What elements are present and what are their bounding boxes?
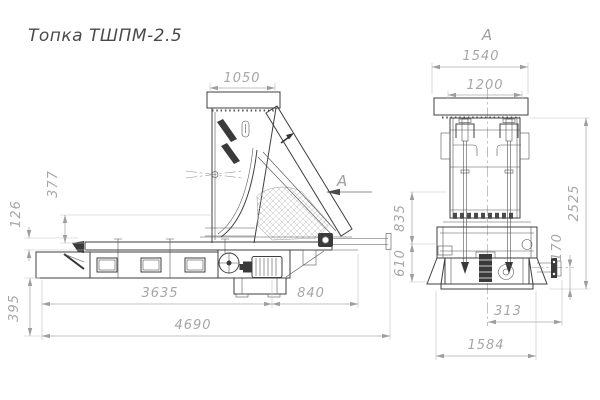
dim-shaft-offset: 313	[494, 304, 522, 319]
dim-overall-height: 2525	[567, 184, 582, 221]
dim-base-width: 1584	[467, 338, 504, 353]
front-view: А	[393, 26, 590, 360]
dim-conveyor-length: 3635	[141, 286, 178, 301]
side-view-dimensions: 1050 377 126 395 3635	[7, 71, 390, 340]
hopper-brace	[221, 143, 240, 164]
hopper-brace	[217, 119, 237, 142]
dim-hopper-height: 377	[46, 170, 61, 198]
section-arrow: А	[326, 172, 372, 195]
front-hopper	[434, 98, 529, 218]
hopper	[186, 92, 330, 243]
dim-shaft-axis-height: 170	[550, 233, 565, 261]
dim-top-frame-width: 1540	[462, 49, 499, 64]
dim-base-depth: 395	[7, 294, 22, 322]
drawing-sheet: Топка ТШПМ-2.5	[0, 0, 600, 400]
dim-lower-height: 610	[393, 249, 408, 277]
front-view-dimensions: 1540 1200 835 610 2525 170	[393, 49, 590, 360]
material-pile	[257, 187, 330, 240]
side-view: А	[7, 71, 391, 340]
shaft-end	[386, 234, 391, 250]
dim-mid-height: 835	[393, 204, 408, 232]
coupling	[243, 262, 252, 273]
section-arrow-label: А	[336, 172, 347, 190]
grate-bars	[452, 212, 514, 219]
dim-overall-length: 4690	[174, 318, 211, 333]
technical-drawing: А	[0, 0, 600, 400]
electric-motor	[252, 257, 282, 278]
dim-drive-length: 840	[297, 286, 325, 301]
front-view-label: А	[481, 26, 492, 44]
dim-hopper-opening-width: 1200	[466, 78, 503, 93]
dim-hopper-top-width: 1050	[223, 71, 260, 86]
dim-grate-height: 126	[9, 200, 24, 228]
